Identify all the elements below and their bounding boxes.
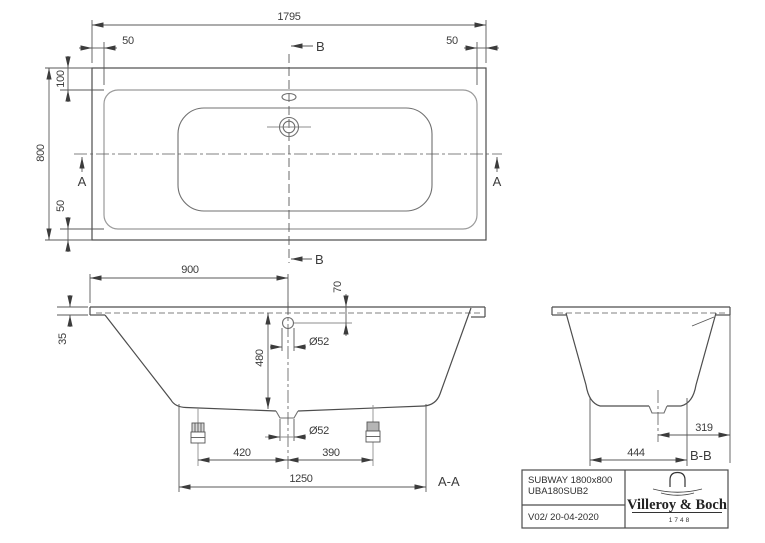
section-marker-b-bottom: B [315,252,324,267]
dim-overflow-diameter: Ø52 [309,336,329,348]
brand-year: 1748 [669,517,691,524]
article-number: UBA180SUB2 [528,486,588,497]
dim-rim-foot: 50 [55,200,67,212]
product-name: SUBWAY 1800x800 [528,475,612,486]
dim-base-width: 444 [627,447,645,459]
dim-drain-offset: 319 [695,422,713,434]
version-date: V02/ 20-04-2020 [528,512,599,523]
plan-view-outline [74,54,502,263]
dim-inner-depth: 480 [254,349,266,367]
adjustable-foot-left [191,408,205,466]
dim-foot-left-to-drain: 420 [233,447,251,459]
villeroy-boch-logo-icon [653,473,702,496]
dim-drain-to-foot-right: 390 [322,447,340,459]
section-bb-label: B-B [690,448,712,463]
wall-tick-mark [692,317,714,326]
adjustable-foot-right [366,405,380,466]
section-aa-label: A-A [438,474,460,489]
dim-rim-right: 50 [446,35,458,47]
drain-outlet-section [276,411,298,418]
dim-overall-width: 800 [35,144,47,162]
dim-base-length: 1250 [289,473,312,485]
dim-rim-head: 100 [55,70,67,88]
section-marker-b-top: B [316,39,325,54]
drawing-page: 1795 50 50 100 800 50 B B A [0,0,765,543]
bathtub-technical-drawing: 1795 50 50 100 800 50 B B A [0,0,765,543]
dim-overall-length: 1795 [277,11,300,23]
dim-drain-diameter: Ø52 [309,425,329,437]
dim-overflow-from-end: 900 [181,264,199,276]
title-block: SUBWAY 1800x800 UBA180SUB2 V02/ 20-04-20… [522,470,728,528]
dim-rim-left: 50 [122,35,134,47]
section-marker-a-right: A [493,174,502,189]
brand-name: Villeroy & Boch [627,497,727,513]
dim-overflow-below-rim: 70 [332,281,344,293]
section-aa-dimensions: 900 70 35 480 Ø52 Ø52 420 390 [57,264,460,492]
dim-rim-height: 35 [57,333,69,345]
section-marker-a-left: A [78,174,87,189]
